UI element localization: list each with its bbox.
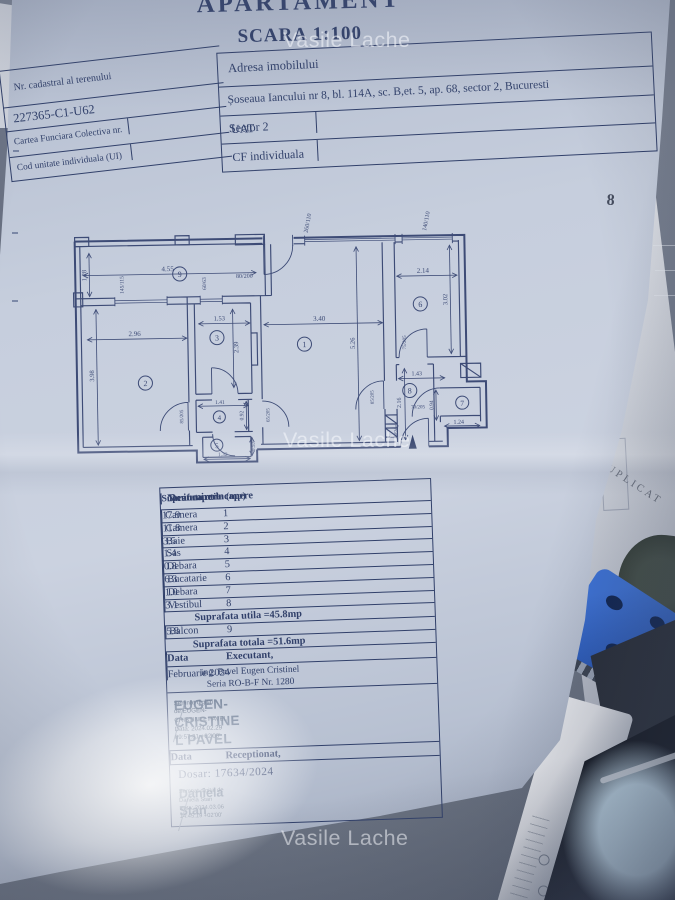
watermark-top: Vasile Lache xyxy=(283,28,483,53)
dim-sas-w: 1.41 xyxy=(215,400,225,406)
cadastral-info-table: Nr. cadastral al terenului 227365-C1-U62… xyxy=(0,41,656,189)
dim-balcony-h: 1.28 xyxy=(81,269,88,281)
cut-text-stub xyxy=(13,150,19,152)
dim-debara7-h: 0.94 xyxy=(429,400,435,410)
door-arcs xyxy=(157,242,441,457)
cf-label: CF individuala xyxy=(222,140,319,166)
dim-kitchen-h: 3.02 xyxy=(442,294,449,306)
dim-room1-h: 5.26 xyxy=(350,337,357,349)
svg-text:8: 8 xyxy=(408,386,412,395)
dim-room2-w: 2.96 xyxy=(128,330,141,338)
dim-line xyxy=(89,253,90,296)
win-room2-label: 145/115 xyxy=(119,276,125,294)
dim-kitchen-w: 2.14 xyxy=(417,267,430,275)
dim-room2-h: 3.98 xyxy=(89,369,96,381)
door-balcony-label: 80/200 xyxy=(236,274,253,280)
win-room1-label: 260/110 xyxy=(304,213,314,233)
dim-debara5-h: 0.57 xyxy=(251,441,257,451)
watermark-middle: Vasile Lache xyxy=(283,428,483,453)
door-kitchen-label: 75/205 xyxy=(403,335,408,350)
info-left-column: Nr. cadastral al terenului 227365-C1-U62… xyxy=(0,45,232,182)
room-2-camera: 2 xyxy=(138,376,152,390)
svg-text:4: 4 xyxy=(218,414,222,422)
svg-text:3: 3 xyxy=(215,334,219,343)
dim-debara7-w: 1.24 xyxy=(453,420,464,426)
cut-text-stub xyxy=(12,232,18,234)
document-title: APARTAMENT xyxy=(139,0,460,21)
svg-text:9: 9 xyxy=(178,270,182,279)
uat-value: Sector 2 xyxy=(220,114,269,136)
dim-debara5-w: 1.32 xyxy=(218,452,228,458)
dim-bath-w: 1.53 xyxy=(214,315,226,322)
cf-value-empty xyxy=(222,144,230,149)
room-4-sas: 4 xyxy=(213,411,225,423)
dim-sas-h: 0.92 xyxy=(239,410,245,420)
watermark-bottom: Vasile Lache xyxy=(281,826,481,851)
dim-line xyxy=(264,323,383,325)
win-kitchen-label: 140/110 xyxy=(422,211,432,231)
cut-text-stub xyxy=(12,300,18,302)
dim-line xyxy=(204,459,250,460)
dim-line xyxy=(399,378,445,379)
room-5-debara: 5 xyxy=(211,439,223,451)
win-bath-label: 60/63 xyxy=(202,277,208,290)
dim-line xyxy=(87,338,186,340)
room-6-bucatarie: 6 xyxy=(413,297,427,311)
photo-of-document: Se DUPLICAT APARTAMENT SCARA 1:100 8 Nr.… xyxy=(0,0,675,900)
svg-text:2: 2 xyxy=(143,379,147,388)
svg-text:7: 7 xyxy=(460,399,464,408)
dim-room1-w: 3.40 xyxy=(313,315,326,323)
svg-text:5: 5 xyxy=(215,442,219,450)
dim-bath-h: 2.39 xyxy=(233,342,240,354)
col-header-suprafata: Suprafata utila (mp) xyxy=(160,490,251,504)
dim-line xyxy=(199,323,250,324)
room-7-debara: 7 xyxy=(456,396,469,409)
room-1-camera: 1 xyxy=(297,337,311,351)
door-debara7-label: 70/205 xyxy=(411,405,426,410)
door-room1-vestibul-label: 85/205 xyxy=(371,390,376,405)
svg-text:1: 1 xyxy=(302,340,306,349)
svg-text:6: 6 xyxy=(418,300,422,309)
dim-line xyxy=(449,245,451,353)
door-sas-left-label: 85/205 xyxy=(180,409,185,424)
dim-vestibul-h: 2.16 xyxy=(397,397,403,408)
dim-line xyxy=(397,275,457,276)
room-3-baie: 3 xyxy=(210,330,224,344)
dim-vestibul-w: 1.43 xyxy=(411,371,422,377)
door-sas-right-label: 65/205 xyxy=(266,408,271,423)
handwritten-page-mark: 8 xyxy=(606,192,615,210)
dim-line xyxy=(436,390,437,420)
dim-line xyxy=(96,310,98,446)
